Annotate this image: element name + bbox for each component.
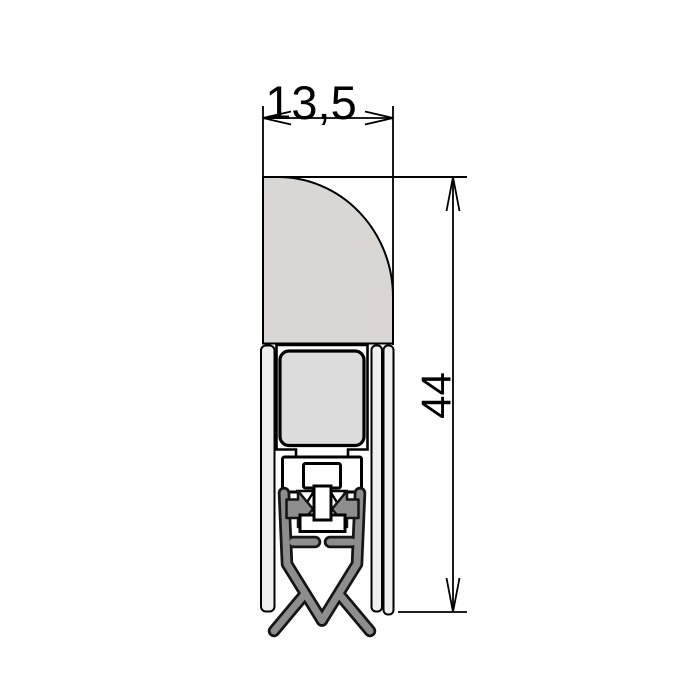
guide-rail-right-inner [372,346,383,612]
guide-rail-right-outer [384,346,394,615]
screw-channel-cavity [304,464,341,489]
height-dimension-label: 44 [413,372,460,419]
guide-rail-left [261,346,275,612]
carrier-t-post-stem [314,486,331,520]
width-dimension-label: 13,5 [265,76,356,129]
foam-insert-block [280,351,364,446]
technical-drawing: 13,5 44 [0,0,700,700]
